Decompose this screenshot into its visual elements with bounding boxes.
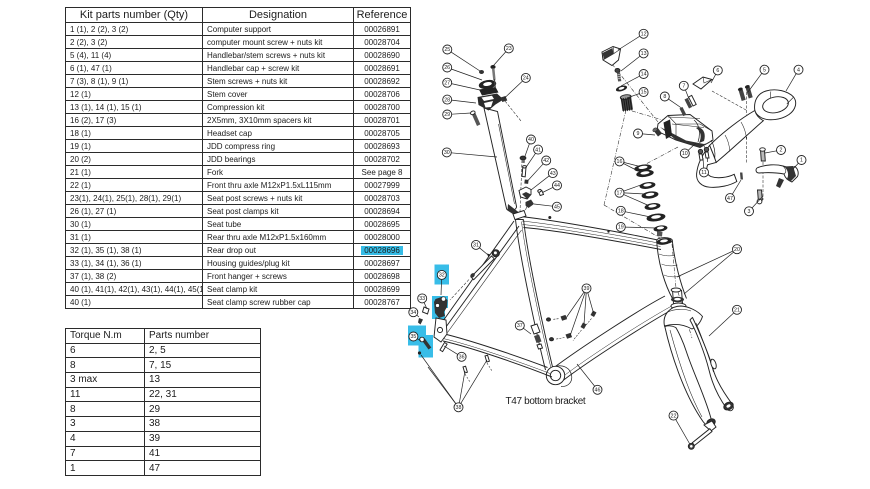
svg-text:41: 41 (535, 147, 541, 153)
svg-text:9: 9 (637, 131, 640, 137)
svg-text:19: 19 (618, 225, 624, 231)
svg-text:39: 39 (584, 286, 590, 292)
svg-text:31: 31 (473, 243, 479, 249)
svg-text:3: 3 (748, 209, 751, 215)
svg-text:6: 6 (716, 68, 719, 74)
svg-text:46: 46 (595, 388, 601, 394)
svg-text:15: 15 (641, 90, 647, 96)
svg-text:34: 34 (410, 310, 416, 316)
svg-text:7: 7 (682, 84, 685, 90)
svg-text:28: 28 (444, 97, 450, 103)
svg-text:30: 30 (444, 150, 450, 156)
svg-text:10: 10 (682, 151, 688, 157)
svg-text:4: 4 (797, 67, 800, 73)
svg-text:29: 29 (444, 112, 450, 118)
svg-text:18: 18 (618, 209, 624, 215)
svg-text:37: 37 (517, 323, 523, 329)
svg-text:36: 36 (459, 355, 465, 361)
svg-text:43: 43 (550, 171, 556, 177)
svg-text:32: 32 (439, 273, 445, 279)
svg-text:8: 8 (663, 94, 666, 100)
svg-text:21: 21 (734, 308, 740, 314)
svg-text:40: 40 (528, 137, 534, 143)
svg-text:27: 27 (444, 80, 450, 86)
svg-text:16: 16 (617, 159, 623, 165)
svg-text:5: 5 (763, 67, 766, 73)
svg-text:22: 22 (671, 413, 677, 419)
svg-text:25: 25 (444, 47, 450, 53)
svg-text:42: 42 (543, 158, 549, 164)
svg-text:26: 26 (444, 65, 450, 71)
svg-text:2: 2 (780, 148, 783, 154)
svg-text:44: 44 (554, 183, 560, 189)
svg-text:23: 23 (506, 46, 512, 52)
svg-text:14: 14 (641, 72, 647, 78)
svg-text:35: 35 (410, 334, 416, 340)
svg-text:47: 47 (727, 196, 733, 202)
svg-text:33: 33 (419, 296, 425, 302)
svg-text:1: 1 (800, 158, 803, 164)
svg-text:11: 11 (701, 170, 707, 176)
svg-text:13: 13 (641, 51, 647, 57)
svg-text:24: 24 (523, 76, 529, 82)
svg-text:12: 12 (641, 32, 647, 38)
svg-text:20: 20 (734, 247, 740, 253)
svg-text:17: 17 (617, 190, 623, 196)
svg-text:45: 45 (554, 204, 560, 210)
svg-text:38: 38 (456, 405, 462, 411)
svg-text:T47 bottom bracket: T47 bottom bracket (506, 396, 586, 407)
